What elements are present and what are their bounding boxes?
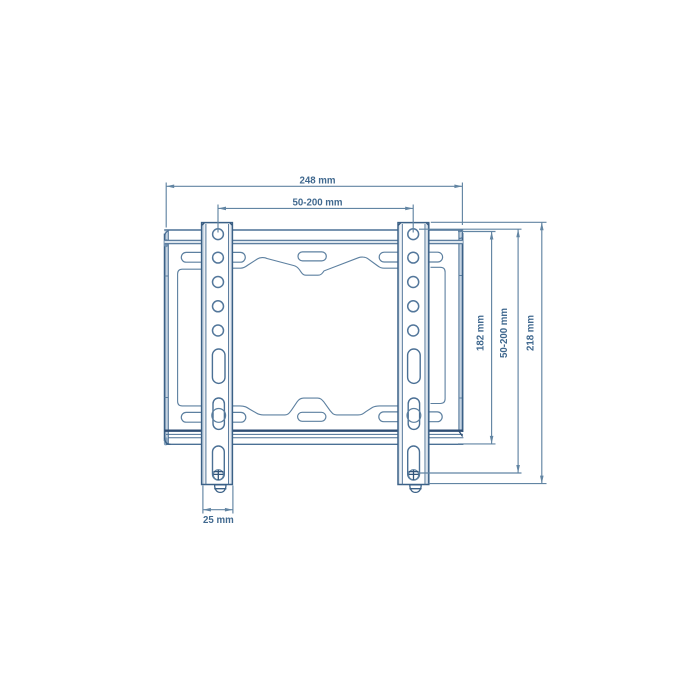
svg-text:248 mm: 248 mm — [299, 175, 335, 186]
svg-text:50-200 mm: 50-200 mm — [292, 197, 342, 208]
svg-text:25 mm: 25 mm — [203, 515, 234, 526]
svg-text:218 mm: 218 mm — [526, 315, 537, 351]
svg-text:182 mm: 182 mm — [476, 315, 487, 351]
svg-text:50-200 mm: 50-200 mm — [499, 308, 510, 358]
